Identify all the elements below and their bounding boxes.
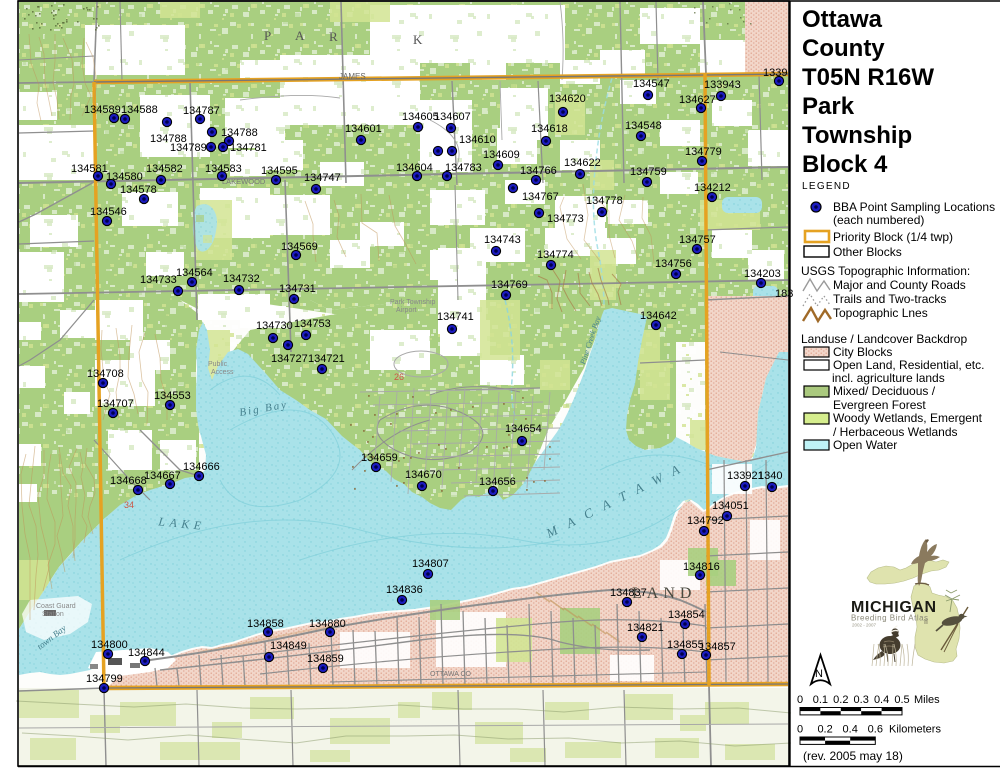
svg-text:Block 4: Block 4	[802, 151, 888, 178]
svg-text:(each numbered): (each numbered)	[833, 213, 924, 227]
svg-text:134836: 134836	[386, 584, 423, 596]
svg-text:134756: 134756	[655, 258, 692, 270]
svg-text:134792: 134792	[687, 515, 724, 527]
svg-text:BBA Point Sampling Locations: BBA Point Sampling Locations	[833, 200, 995, 214]
svg-text:0: 0	[797, 724, 803, 736]
svg-text:County: County	[802, 35, 885, 62]
svg-text:134607: 134607	[434, 111, 471, 123]
svg-text:134778: 134778	[586, 195, 623, 207]
svg-text:Landuse / Landcover Backdrop: Landuse / Landcover Backdrop	[801, 332, 967, 346]
svg-text:K: K	[413, 32, 423, 47]
svg-text:134721: 134721	[308, 353, 345, 365]
svg-text:Other Blocks: Other Blocks	[833, 245, 902, 259]
svg-text:134642: 134642	[640, 310, 677, 322]
svg-text:0.6: 0.6	[868, 724, 883, 736]
svg-text:134609: 134609	[483, 149, 520, 161]
svg-text:N: N	[815, 668, 823, 680]
svg-text:134732: 134732	[223, 273, 260, 285]
svg-text:1339: 1339	[763, 67, 787, 79]
svg-text:Evergreen Forest: Evergreen Forest	[833, 398, 926, 412]
svg-text:Major and County Roads: Major and County Roads	[833, 278, 966, 292]
svg-text:134769: 134769	[491, 279, 528, 291]
svg-text:134783: 134783	[445, 162, 482, 174]
svg-text:JAMES: JAMES	[339, 72, 366, 81]
svg-text:34: 34	[124, 500, 134, 510]
svg-text:Ottawa: Ottawa	[802, 6, 883, 33]
svg-text:LEGEND: LEGEND	[802, 181, 851, 192]
svg-text:R: R	[329, 29, 338, 44]
svg-text:134731: 134731	[279, 283, 316, 295]
svg-text:T05N R16W: T05N R16W	[802, 64, 934, 91]
svg-text:134620: 134620	[549, 93, 586, 105]
svg-text:134789: 134789	[170, 142, 207, 154]
svg-text:Park Township: Park Township	[390, 299, 436, 306]
svg-text:Coast Guard: Coast Guard	[36, 603, 76, 610]
svg-text:2002 - 2007: 2002 - 2007	[852, 623, 877, 628]
svg-text:134595: 134595	[261, 165, 298, 177]
svg-text:0.2: 0.2	[817, 724, 832, 736]
svg-text:Breeding Bird Atlas: Breeding Bird Atlas	[851, 614, 929, 623]
svg-text:134666: 134666	[183, 461, 220, 473]
svg-text:0.5: 0.5	[894, 694, 909, 706]
svg-text:134618: 134618	[531, 123, 568, 135]
svg-text:II: II	[924, 619, 928, 626]
svg-text:134656: 134656	[479, 476, 516, 488]
svg-text:134622: 134622	[564, 157, 601, 169]
svg-text:1340: 1340	[758, 470, 782, 482]
svg-text:133943: 133943	[704, 79, 741, 91]
svg-text:Park: Park	[802, 93, 855, 120]
svg-text:Topographic Lnes: Topographic Lnes	[833, 306, 928, 320]
svg-text:134741: 134741	[437, 311, 474, 323]
svg-text:134548: 134548	[625, 120, 662, 132]
svg-text:134601: 134601	[345, 123, 382, 135]
svg-text:134708: 134708	[87, 368, 124, 380]
svg-text:/ Herbaceous Wetlands: / Herbaceous Wetlands	[833, 425, 958, 439]
svg-text:134821: 134821	[627, 622, 664, 634]
svg-text:Mixed/ Deciduous /: Mixed/ Deciduous /	[833, 384, 936, 398]
svg-text:City Blocks: City Blocks	[833, 345, 892, 359]
svg-text:134627: 134627	[679, 94, 716, 106]
svg-text:134727: 134727	[271, 353, 308, 365]
svg-text:134767: 134767	[522, 191, 559, 203]
svg-text:134849: 134849	[270, 640, 307, 652]
svg-text:134051: 134051	[712, 500, 749, 512]
svg-text:Open Water: Open Water	[833, 438, 897, 452]
svg-text:26: 26	[394, 372, 404, 382]
svg-text:134774: 134774	[537, 249, 574, 261]
svg-text:134547: 134547	[633, 78, 670, 90]
svg-text:0.4: 0.4	[874, 694, 889, 706]
svg-text:Access: Access	[211, 369, 234, 376]
svg-text:134766: 134766	[520, 165, 557, 177]
svg-text:Township: Township	[802, 122, 912, 149]
svg-text:134670: 134670	[405, 469, 442, 481]
svg-text:134781: 134781	[230, 142, 267, 154]
svg-text:Priority Block (1/4 twp): Priority Block (1/4 twp)	[833, 230, 953, 244]
svg-text:Open Land, Residential, etc.: Open Land, Residential, etc.	[833, 358, 984, 372]
svg-text:134668: 134668	[110, 475, 147, 487]
svg-text:OTTAWA CO: OTTAWA CO	[430, 671, 472, 678]
svg-text:134773: 134773	[547, 213, 584, 225]
svg-text:(rev. 2005 may 18): (rev. 2005 may 18)	[803, 749, 903, 763]
svg-text:134659: 134659	[361, 452, 398, 464]
svg-text:134707: 134707	[97, 398, 134, 410]
svg-text:134733: 134733	[140, 274, 177, 286]
svg-text:Public: Public	[208, 361, 228, 368]
svg-text:0.2: 0.2	[833, 694, 848, 706]
svg-text:134654: 134654	[505, 423, 542, 435]
svg-text:incl. agriculture lands: incl. agriculture lands	[832, 371, 945, 385]
svg-text:134753: 134753	[294, 318, 331, 330]
svg-text:Miles: Miles	[914, 694, 940, 706]
svg-text:134759: 134759	[630, 166, 667, 178]
svg-text:0.4: 0.4	[843, 724, 858, 736]
svg-text:134730: 134730	[256, 320, 293, 332]
svg-text:134578: 134578	[120, 184, 157, 196]
svg-text:134807: 134807	[412, 558, 449, 570]
svg-text:Station: Station	[42, 611, 64, 618]
svg-text:134747: 134747	[304, 172, 341, 184]
svg-text:134582: 134582	[146, 163, 183, 175]
svg-text:134610: 134610	[459, 134, 496, 146]
svg-text:134667: 134667	[144, 470, 181, 482]
svg-text:0: 0	[797, 694, 803, 706]
svg-text:A: A	[295, 28, 305, 43]
svg-text:0.3: 0.3	[854, 694, 869, 706]
svg-text:Kilometers: Kilometers	[889, 724, 941, 736]
svg-text:USGS Topographic Information:: USGS Topographic Information:	[801, 264, 970, 278]
svg-text:P: P	[264, 28, 271, 43]
svg-text:Trails and Two-tracks: Trails and Two-tracks	[833, 292, 946, 306]
svg-text:134564: 134564	[176, 267, 213, 279]
svg-text:134859: 134859	[307, 653, 344, 665]
svg-text:134743: 134743	[484, 234, 521, 246]
svg-text:134553: 134553	[154, 390, 191, 402]
svg-text:Woody Wetlands, Emergent: Woody Wetlands, Emergent	[833, 411, 983, 425]
svg-text:0.1: 0.1	[813, 694, 828, 706]
svg-text:Airport: Airport	[396, 307, 417, 314]
svg-text:LAKEWOOD: LAKEWOOD	[222, 177, 266, 186]
